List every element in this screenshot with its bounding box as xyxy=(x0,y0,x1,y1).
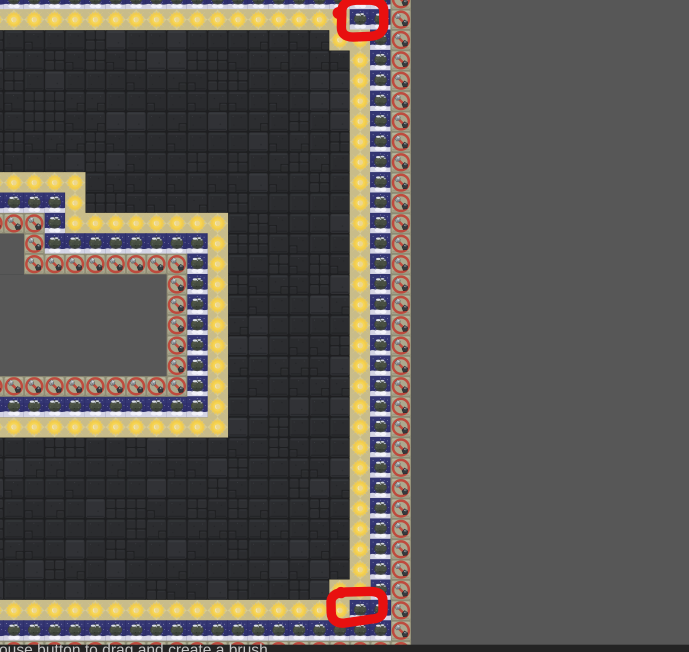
svg-text:ouse button to drag and create: ouse button to drag and create a brush xyxy=(0,642,268,652)
